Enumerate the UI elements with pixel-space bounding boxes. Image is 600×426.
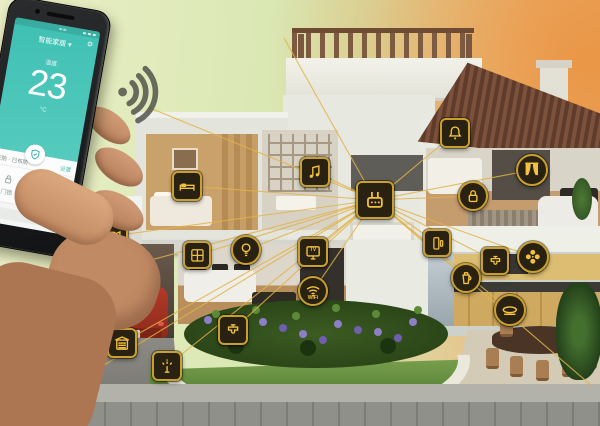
settings-link[interactable]: 设置 — [59, 164, 71, 174]
lock-icon — [2, 172, 16, 186]
smart-home-scene: TVWiFi 智能家居 ▾ ⚙ 温度 23 °C — [0, 0, 600, 426]
shield-check-icon — [28, 148, 42, 162]
phone-earpiece — [46, 11, 74, 20]
action-label: 门锁 — [0, 186, 13, 197]
status-icons — [93, 33, 96, 35]
phone-front-camera — [35, 8, 41, 14]
settings-gear-icon[interactable]: ⚙ — [86, 40, 94, 49]
app-title: 智能家居 ▾ — [38, 36, 72, 49]
